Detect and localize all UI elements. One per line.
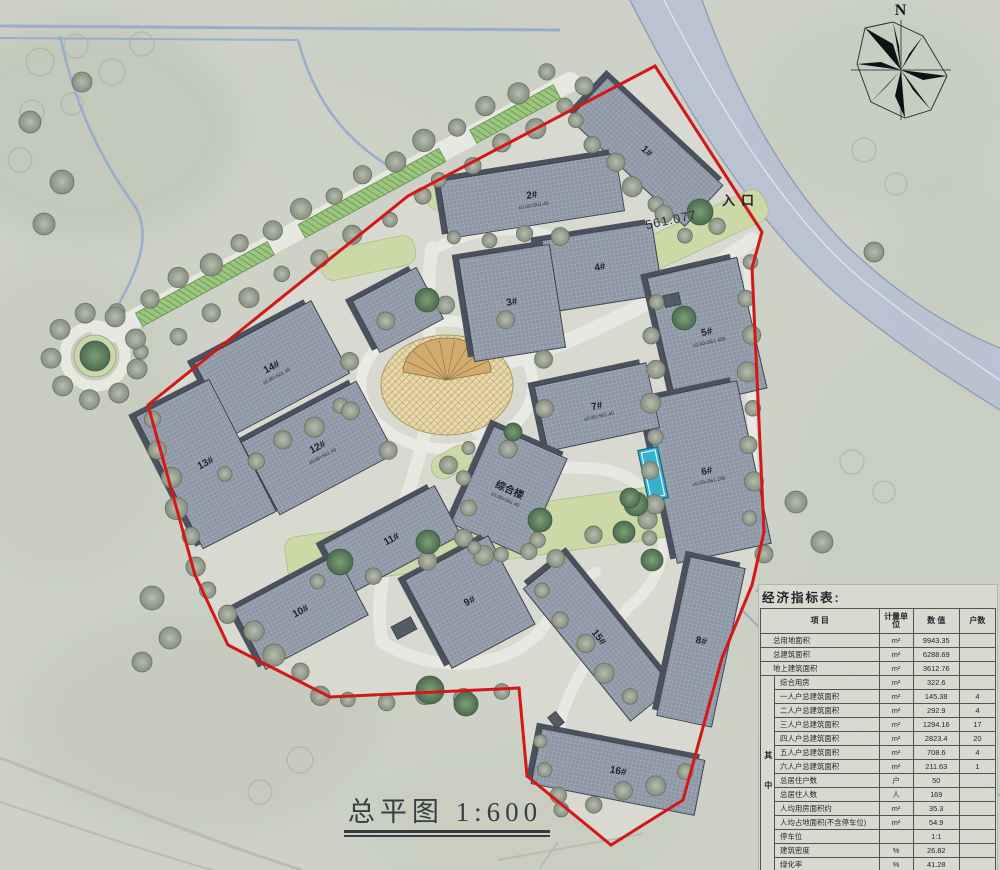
tree-gray — [170, 328, 187, 345]
tree-gray — [547, 550, 565, 568]
tree-green — [613, 521, 635, 543]
tree-gray — [742, 511, 757, 526]
tree-gray — [622, 177, 642, 197]
tree-green — [672, 306, 696, 330]
table-unit: m² — [879, 662, 913, 676]
tree-gray — [447, 231, 460, 244]
tree-gray — [418, 552, 436, 570]
table-unit: m² — [879, 802, 913, 816]
table-row: 其中综合用房m²322.6 — [761, 676, 996, 690]
tree-green — [416, 530, 440, 554]
tree-gray — [231, 235, 248, 252]
tree-gray — [476, 96, 495, 115]
tree-green — [416, 676, 444, 704]
tree-gray — [217, 466, 232, 481]
table-value: 169 — [913, 788, 959, 802]
tree-gray — [646, 776, 666, 796]
tree-gray — [304, 417, 324, 437]
plan-title: 总平图 1:600 — [336, 790, 554, 829]
table-unit: m² — [879, 760, 913, 774]
tree-gray — [594, 663, 614, 683]
tree-gray — [468, 541, 481, 554]
table-row: 二人户总建筑面积m²292.94 — [761, 704, 996, 718]
table-value: 35.3 — [913, 802, 959, 816]
table-unit — [879, 830, 913, 844]
tree-gray — [53, 376, 73, 396]
table-unit: m² — [879, 816, 913, 830]
tree-gray — [413, 129, 435, 151]
table-count — [959, 662, 995, 676]
table-unit: m² — [879, 634, 913, 648]
table-header: 户数 — [959, 609, 995, 634]
tree-gray — [141, 290, 159, 308]
table-item: 六人户总建筑面积 — [775, 760, 879, 774]
table-item: 总居住人数 — [775, 788, 879, 802]
table-row: 一人户总建筑面积m²145.384 — [761, 690, 996, 704]
tree-gray — [742, 326, 760, 344]
table-unit: m² — [879, 648, 913, 662]
tree-gray — [497, 311, 515, 329]
table-count — [959, 788, 995, 802]
north-compass: N — [843, 2, 959, 122]
tree-gray — [109, 383, 129, 403]
tree-gray — [263, 221, 282, 240]
table-row: 六人户总建筑面积m²211.631 — [761, 760, 996, 774]
tree-gray — [340, 692, 355, 707]
table-count — [959, 816, 995, 830]
tree-green — [641, 549, 663, 571]
entrance-label: 入口 — [722, 190, 760, 209]
tree-gray — [140, 586, 164, 610]
table-row: 总建筑面积m²6288.69 — [761, 648, 996, 662]
tree-gray — [79, 390, 99, 410]
table-unit: % — [879, 844, 913, 858]
tree-gray — [341, 352, 359, 370]
tree-gray — [274, 266, 290, 282]
table-item: 人均占地面积(不含停车位) — [775, 816, 879, 830]
table-value: 26.82 — [913, 844, 959, 858]
table-value: 2823.4 — [913, 732, 959, 746]
table-item: 总居住户数 — [775, 774, 879, 788]
tree-gray — [568, 113, 583, 128]
tree-gray — [535, 400, 553, 418]
tree-gray — [649, 295, 664, 310]
tree-gray — [310, 574, 325, 589]
table-unit: m² — [879, 732, 913, 746]
table-row: 建筑密度%26.82 — [761, 844, 996, 858]
tree-gray — [647, 360, 665, 378]
north-compass-icon — [843, 16, 959, 122]
table-count — [959, 774, 995, 788]
table-count — [959, 648, 995, 662]
building-label: 4# — [594, 261, 607, 274]
tree-gray — [75, 303, 95, 323]
tree-gray — [622, 689, 638, 705]
tree-gray — [378, 694, 395, 711]
tree-gray — [648, 429, 664, 445]
table-item: 总建筑面积 — [761, 648, 880, 662]
table-value: 145.38 — [913, 690, 959, 704]
table-count: 17 — [959, 718, 995, 732]
table-count — [959, 830, 995, 844]
tree-green — [504, 423, 522, 441]
table-unit: m² — [879, 690, 913, 704]
table-count — [959, 858, 995, 870]
building-3: 3# — [452, 240, 566, 363]
table-row: 五人户总建筑面积m²708.64 — [761, 746, 996, 760]
table-item: 人均用房面积约 — [775, 802, 879, 816]
table-item: 综合用房 — [775, 676, 879, 690]
tree-gray — [516, 225, 532, 241]
table-row: 四人户总建筑面积m²2823.420 — [761, 732, 996, 746]
tree-gray — [539, 64, 555, 80]
table-count: 4 — [959, 704, 995, 718]
tree-gray — [311, 250, 328, 267]
tree-gray — [614, 781, 632, 799]
table-row: 总用地面积m²9943.35 — [761, 634, 996, 648]
tree-gray — [105, 307, 125, 327]
tree-gray — [448, 119, 465, 136]
table-row: 人均占地面积(不含停车位)m²54.9 — [761, 816, 996, 830]
tree-gray — [456, 471, 471, 486]
tree-green — [327, 549, 353, 575]
table-count — [959, 676, 995, 690]
table-value: 211.63 — [913, 760, 959, 774]
tree-gray — [248, 453, 265, 470]
tree-gray — [642, 531, 657, 546]
tree-green — [415, 288, 439, 312]
tree-gray — [168, 267, 188, 287]
tree-gray — [239, 288, 259, 308]
tree-gray — [737, 362, 757, 382]
tree-gray — [72, 72, 92, 92]
title-underline-thick — [344, 830, 550, 833]
tree-gray — [353, 165, 371, 183]
table-item: 绿化率 — [775, 858, 879, 870]
tree-gray — [585, 797, 602, 814]
building-label: 3# — [506, 296, 519, 309]
tree-gray — [585, 526, 602, 543]
table-item: 总用地面积 — [761, 634, 880, 648]
tree-gray — [740, 436, 757, 453]
tree-gray — [584, 136, 601, 153]
table-row: 总居住人数人169 — [761, 788, 996, 802]
table-value: 1294.16 — [913, 718, 959, 732]
tree-gray — [379, 441, 397, 459]
table-header: 项 目 — [761, 609, 880, 634]
table-value: 1:1 — [913, 830, 959, 844]
table-unit: m² — [879, 676, 913, 690]
tree-gray — [534, 735, 547, 748]
table-count: 4 — [959, 746, 995, 760]
tree-gray — [33, 213, 55, 235]
title-underline-thin — [344, 835, 550, 837]
table-header: 数 值 — [913, 609, 959, 634]
tree-gray — [326, 188, 342, 204]
tree-gray — [494, 547, 509, 562]
table-count: 20 — [959, 732, 995, 746]
tree-gray — [607, 153, 625, 171]
indicator-table: 经济指标表: 项 目计量单位数 值户数总用地面积m²9943.35总建筑面积m²… — [758, 584, 998, 870]
tree-gray — [552, 612, 569, 629]
table-item: 三人户总建筑面积 — [775, 718, 879, 732]
tree-gray — [641, 393, 661, 413]
table-row: 总居住户数户50 — [761, 774, 996, 788]
among-label: 其中 — [763, 751, 771, 811]
tree-gray — [535, 583, 550, 598]
table-value: 9943.35 — [913, 634, 959, 648]
tree-gray — [709, 218, 726, 235]
tree-gray — [41, 348, 61, 368]
tree-gray — [785, 491, 807, 513]
table-item: 五人户总建筑面积 — [775, 746, 879, 760]
tree-gray — [244, 621, 264, 641]
indicator-table-grid: 项 目计量单位数 值户数总用地面积m²9943.35总建筑面积m²6288.69… — [760, 608, 996, 870]
tree-gray — [290, 198, 311, 219]
table-count — [959, 844, 995, 858]
tree-gray — [537, 762, 552, 777]
table-value: 50 — [913, 774, 959, 788]
table-value: 708.6 — [913, 746, 959, 760]
table-row: 人均用房面积约m²35.3 — [761, 802, 996, 816]
tree-gray — [864, 242, 884, 262]
tree-gray — [50, 319, 70, 339]
table-value: 41.28 — [913, 858, 959, 870]
tree-green — [620, 488, 640, 508]
table-count: 4 — [959, 690, 995, 704]
table-item: 二人户总建筑面积 — [775, 704, 879, 718]
tree-gray — [218, 605, 236, 623]
tree-gray — [341, 402, 359, 420]
site-plan-canvas: 1#2#±0.00=561.404#3#5#±0.00=561.4006#±0.… — [0, 0, 1000, 870]
tree-green — [454, 692, 478, 716]
tree-gray — [494, 684, 510, 700]
tree-gray — [439, 456, 457, 474]
table-item: 一人户总建筑面积 — [775, 690, 879, 704]
tree-gray — [159, 627, 181, 649]
tree-gray — [499, 440, 517, 458]
table-item: 停车位 — [775, 830, 879, 844]
table-unit: m² — [879, 704, 913, 718]
tree-gray — [126, 329, 146, 349]
tree-gray — [274, 431, 292, 449]
tree-gray — [521, 543, 537, 559]
tree-green — [80, 341, 110, 371]
table-unit: 户 — [879, 774, 913, 788]
table-unit: m² — [879, 746, 913, 760]
table-row: 绿化率%41.28 — [761, 858, 996, 870]
table-value: 3612.76 — [913, 662, 959, 676]
tree-gray — [575, 77, 593, 95]
table-count: 1 — [959, 760, 995, 774]
tree-gray — [365, 568, 382, 585]
tree-gray — [462, 441, 475, 454]
tree-gray — [377, 312, 395, 330]
tree-gray — [577, 634, 595, 652]
table-count — [959, 802, 995, 816]
tree-gray — [641, 462, 658, 479]
tree-gray — [385, 152, 405, 172]
tree-gray — [678, 228, 693, 243]
building-label: 2# — [526, 189, 539, 202]
tree-gray — [460, 500, 476, 516]
tree-gray — [535, 350, 553, 368]
tree-gray — [127, 359, 147, 379]
tree-gray — [551, 228, 569, 246]
tree-gray — [643, 327, 660, 344]
tree-gray — [811, 531, 833, 553]
tree-gray — [202, 304, 220, 322]
tree-gray — [200, 254, 222, 276]
tree-gray — [482, 233, 497, 248]
table-unit: m² — [879, 718, 913, 732]
table-value: 292.9 — [913, 704, 959, 718]
table-value: 6288.69 — [913, 648, 959, 662]
table-value: 322.6 — [913, 676, 959, 690]
table-unit: 人 — [879, 788, 913, 802]
table-item: 地上建筑面积 — [761, 662, 880, 676]
table-item: 建筑密度 — [775, 844, 879, 858]
table-row: 地上建筑面积m²3612.76 — [761, 662, 996, 676]
indicator-table-title: 经济指标表: — [760, 586, 996, 608]
tree-green — [528, 508, 552, 532]
table-count — [959, 634, 995, 648]
table-unit: % — [879, 858, 913, 870]
table-value: 54.9 — [913, 816, 959, 830]
tree-gray — [19, 111, 41, 133]
tree-gray — [50, 170, 74, 194]
tree-gray — [132, 652, 152, 672]
table-row: 停车位1:1 — [761, 830, 996, 844]
table-row: 三人户总建筑面积m²1294.1617 — [761, 718, 996, 732]
table-item: 四人户总建筑面积 — [775, 732, 879, 746]
table-header: 计量单位 — [879, 609, 913, 634]
tree-gray — [508, 83, 529, 104]
